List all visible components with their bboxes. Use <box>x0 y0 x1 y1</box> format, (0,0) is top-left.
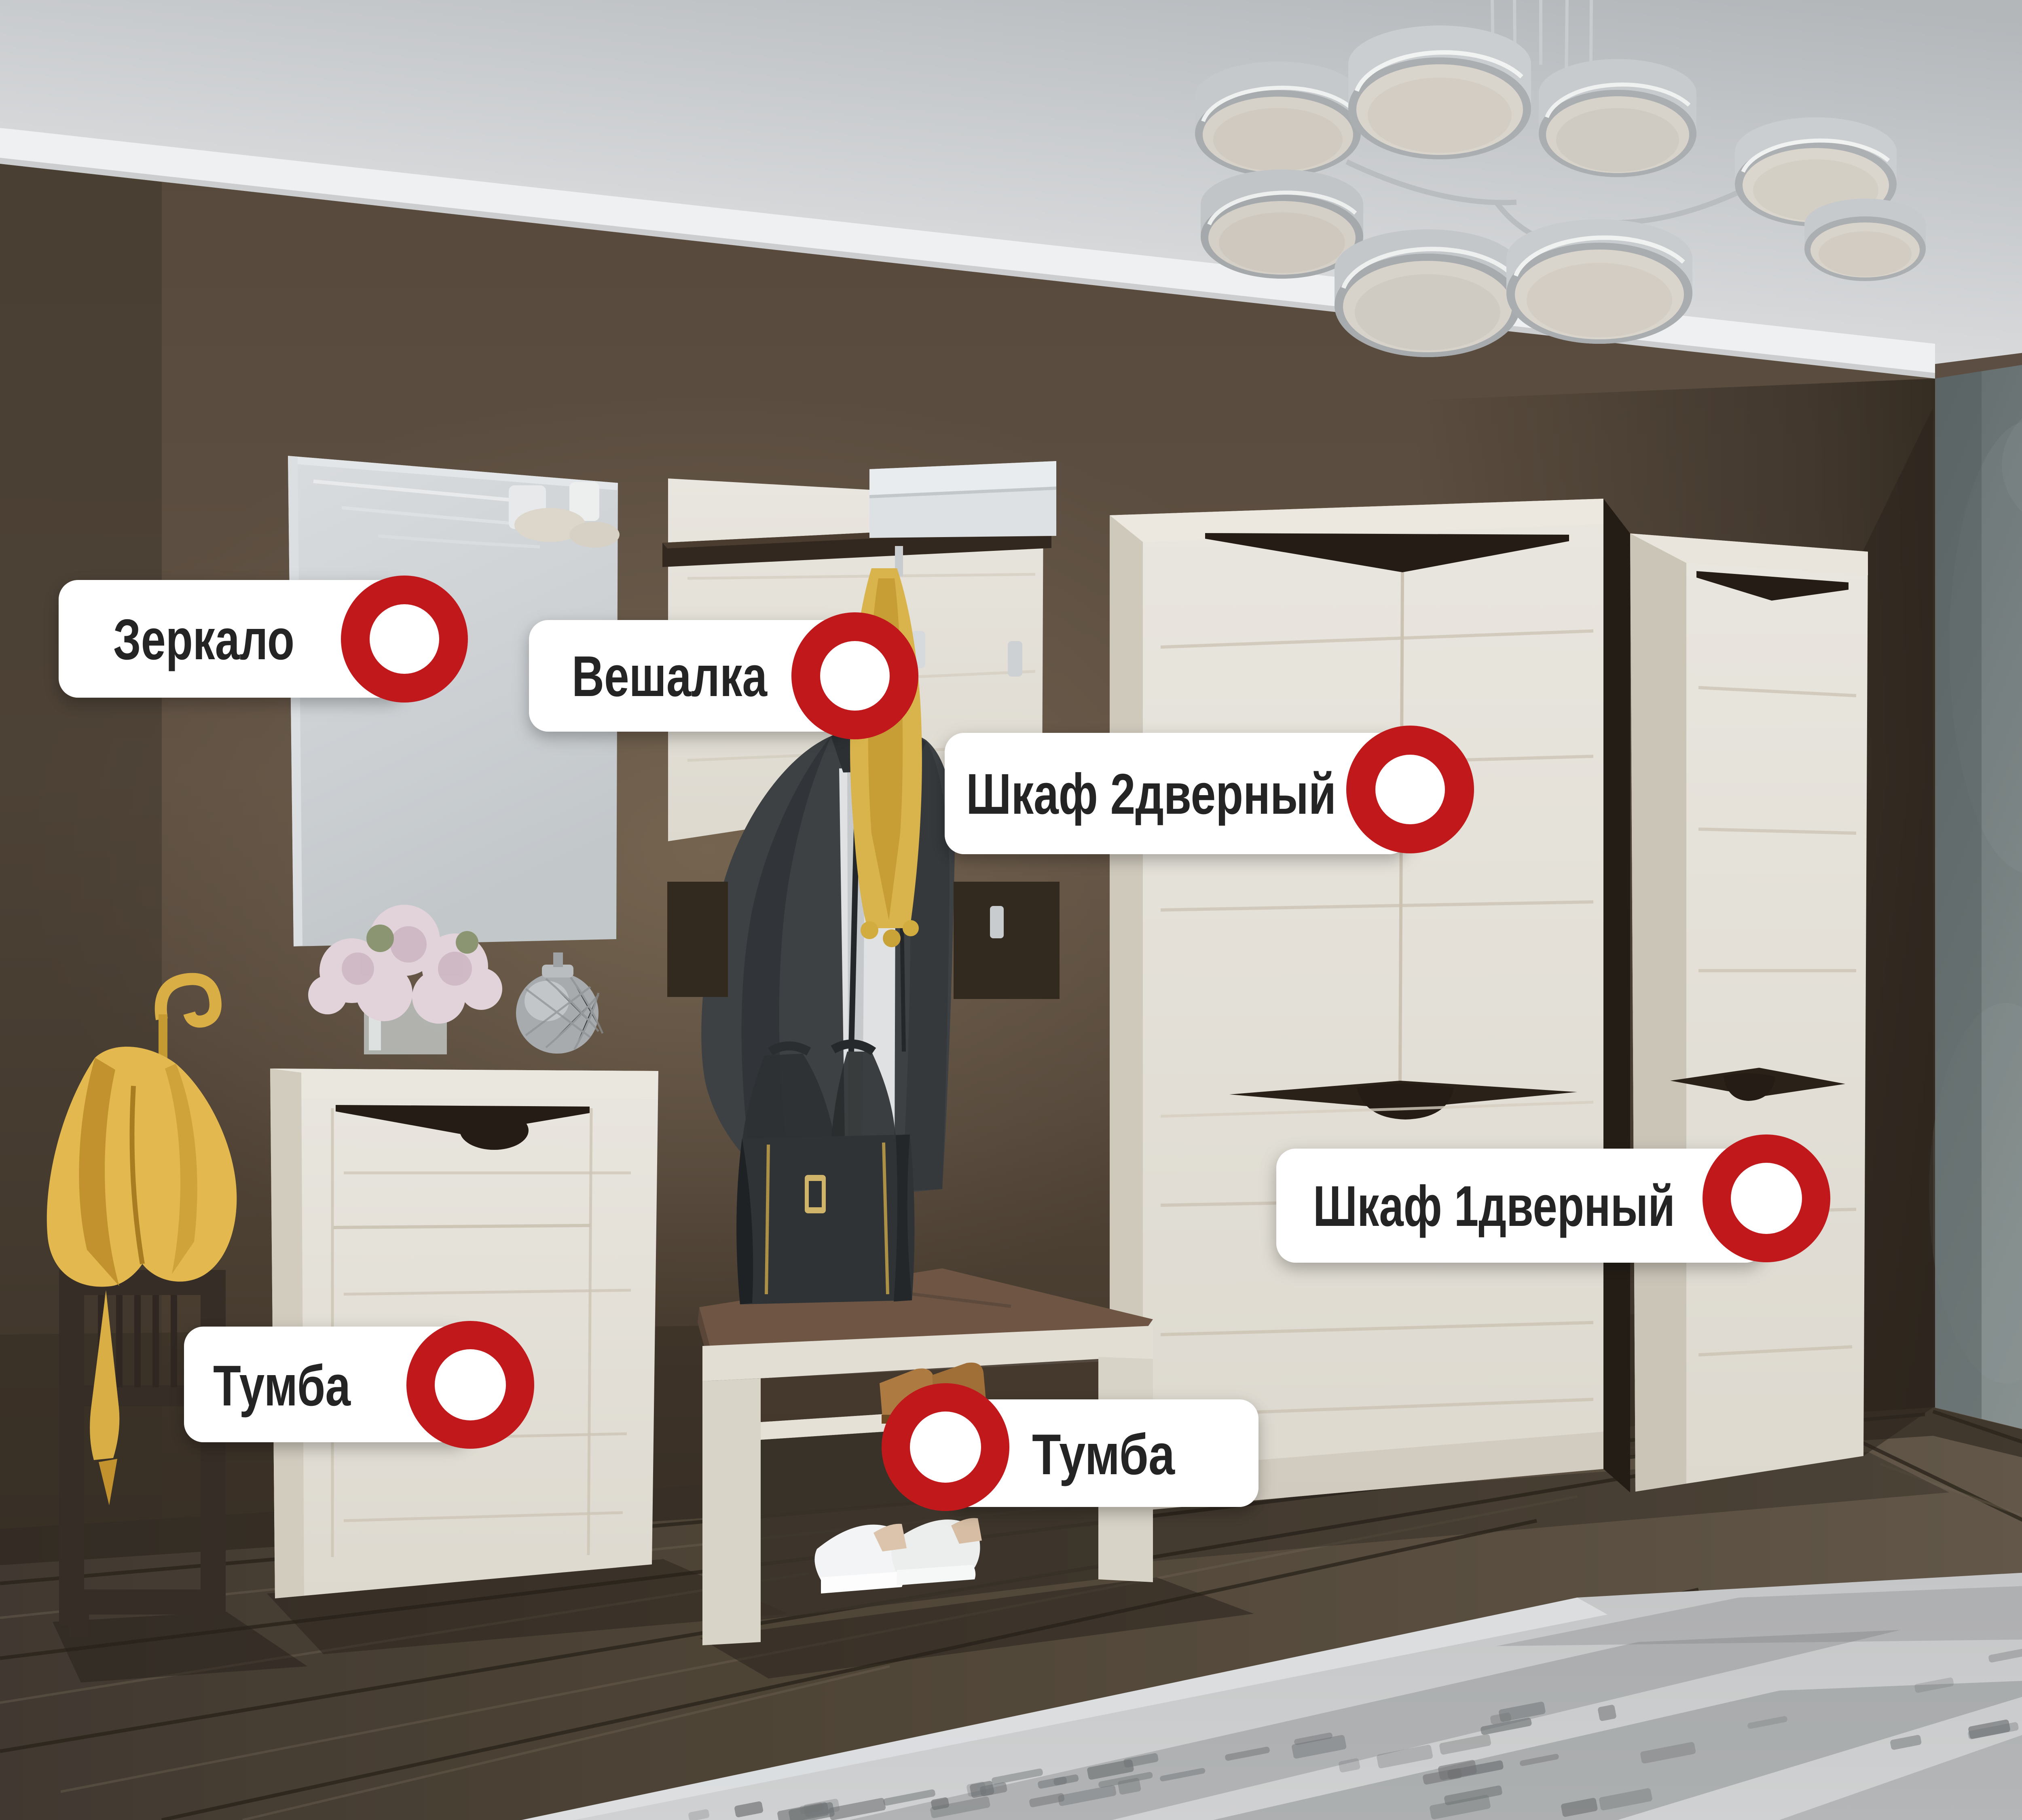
svg-text:Шкаф 2дверный: Шкаф 2дверный <box>966 762 1336 826</box>
svg-text:Шкаф 1дверный: Шкаф 1дверный <box>1313 1174 1675 1238</box>
svg-text:Вешалка: Вешалка <box>572 644 768 709</box>
svg-text:Тумба: Тумба <box>213 1354 351 1418</box>
svg-text:Зеркало: Зеркало <box>113 607 294 672</box>
svg-text:Тумба: Тумба <box>1032 1422 1175 1487</box>
